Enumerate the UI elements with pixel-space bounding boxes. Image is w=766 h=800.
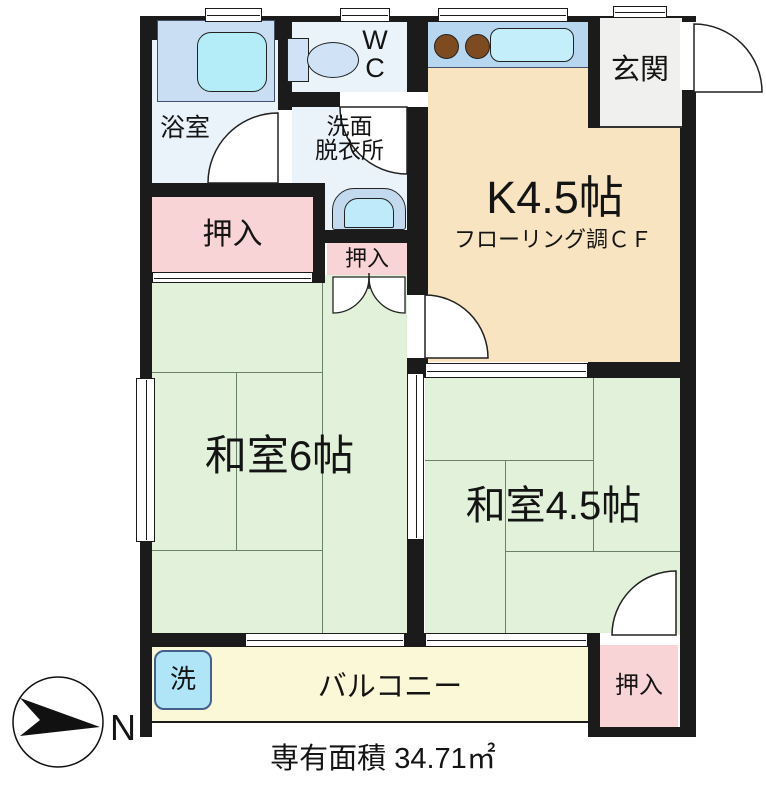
area-label: 専有面積 34.71㎡ xyxy=(0,740,766,778)
kitchen-label: K4.5帖 xyxy=(430,172,680,224)
closet-mid-label: 押入 xyxy=(327,243,407,275)
closet-left-label: 押入 xyxy=(152,200,313,270)
balcony-label: バルコニー xyxy=(240,666,540,708)
entrance-label: 玄関 xyxy=(600,50,680,90)
closet-bottom-label: 押入 xyxy=(600,645,678,727)
closet-double-door-right xyxy=(369,277,405,313)
japanese-room-6-label: 和室6帖 xyxy=(152,428,407,484)
door-arc-entrance xyxy=(694,24,762,92)
washroom-label: 洗面 脱衣所 xyxy=(292,110,407,166)
wc-label: W C xyxy=(356,22,394,86)
door-arc-room45 xyxy=(612,571,676,635)
bathroom-label: 浴室 xyxy=(145,112,225,144)
japanese-room-45-label: 和室4.5帖 xyxy=(425,480,682,532)
kitchen-note-label: フローリング調ＣＦ xyxy=(422,226,684,254)
closet-double-door-left xyxy=(333,277,369,313)
floor-plan: 洗 浴室 W C 洗面 脱衣所 押入 押入 K4.5帖 フローリング調ＣＦ 玄関 xyxy=(0,0,766,800)
door-arc-kitchen xyxy=(425,295,488,358)
